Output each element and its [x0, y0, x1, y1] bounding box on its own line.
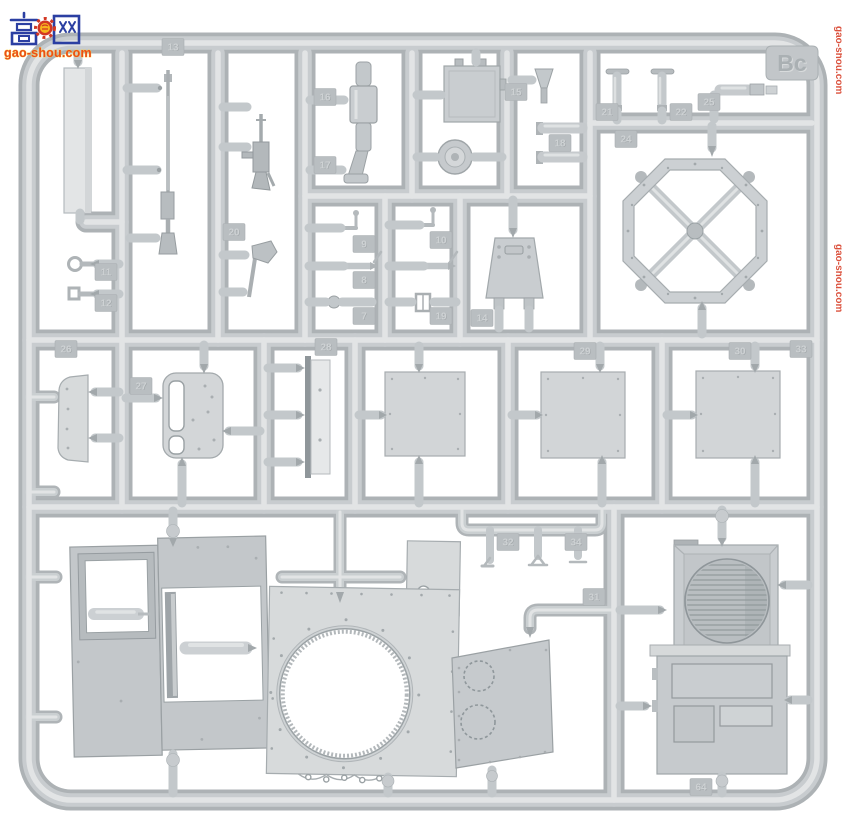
- part-number-text: 24: [620, 135, 632, 146]
- part-cylinder-2: [536, 151, 582, 164]
- part-number-tag: 99: [353, 236, 375, 253]
- part-number-tag: 1919: [430, 308, 452, 325]
- part-number-tag: 6464: [690, 779, 712, 796]
- part-number-tag: 88: [353, 272, 375, 289]
- part-number-text: 10: [435, 236, 447, 247]
- part-number-text: 25: [703, 98, 715, 109]
- part-number-text: 11: [101, 268, 112, 279]
- part-number-tag: 2929: [574, 343, 596, 360]
- part-axe: [249, 241, 277, 297]
- part-number-text: 12: [100, 299, 112, 310]
- part-number-tag: 1010: [430, 232, 452, 249]
- part-number-tag: 2828: [315, 339, 337, 356]
- part-angled-plate: [452, 640, 553, 768]
- part-octagon-turret-ring: [623, 159, 767, 303]
- part-antitank-rifle: [159, 70, 177, 254]
- part-number-text: 13: [167, 43, 179, 54]
- part-number-text: 9: [361, 240, 367, 251]
- part-number-tag: 1818: [549, 135, 571, 152]
- part-number-tag: 3232: [497, 534, 519, 551]
- part-number-text: 19: [435, 312, 447, 323]
- part-number-tag: 1515: [505, 84, 527, 101]
- part-studded-plate: [444, 59, 506, 122]
- part-number-text: 8: [361, 276, 367, 287]
- part-number-text: 17: [319, 161, 331, 172]
- part-number-tag: 3333: [790, 341, 812, 358]
- part-number-text: 27: [135, 382, 147, 393]
- part-number-tag: 2222: [670, 104, 692, 121]
- part-cab-door: [163, 373, 223, 458]
- fist-gear-icon: [36, 19, 55, 38]
- part-number-text: 26: [60, 345, 72, 356]
- part-number-text: 31: [588, 593, 600, 604]
- part-number-text: 15: [510, 88, 522, 99]
- sprue-canvas: 1313111112122020161617179988771010191914…: [0, 0, 842, 828]
- part-hook-bolt-2: [69, 288, 95, 299]
- part-number-text: 20: [228, 228, 240, 239]
- part-number-text: 14: [476, 314, 488, 325]
- sprue-photo: 1313111112122020161617179988771010191914…: [0, 0, 842, 828]
- part-square-plate-3: [696, 371, 780, 458]
- part-funnel: [535, 69, 553, 103]
- part-square-plate-2: [541, 372, 625, 458]
- part-number-text: 28: [320, 343, 332, 354]
- sprue-letter-tag: Bc Bc: [766, 46, 818, 80]
- watermark-url-text: gao-shou.com: [4, 46, 92, 60]
- part-number-text: 34: [570, 538, 582, 549]
- part-number-tag: 2525: [698, 94, 720, 111]
- part-number-tag: 2727: [130, 378, 152, 395]
- part-number-text: 22: [675, 108, 687, 119]
- part-number-text: 16: [319, 93, 331, 104]
- part-radiator-assembly: [650, 540, 790, 774]
- part-pulley-wheel: [438, 140, 472, 174]
- part-number-tag: 3434: [565, 534, 587, 551]
- part-number-text: 64: [695, 783, 707, 794]
- part-number-text: 30: [734, 347, 746, 358]
- part-number-tag: 1717: [314, 157, 336, 174]
- part-number-text: 29: [579, 347, 591, 358]
- part-submachine-gun: [242, 114, 274, 190]
- side-watermark-top: gao-shou.com: [833, 26, 842, 94]
- part-number-text: 7: [361, 312, 367, 323]
- logo-char-gao: [11, 13, 37, 44]
- part-number-tag: 77: [353, 308, 375, 325]
- part-number-tag: 1111: [95, 264, 117, 281]
- part-trapezoid-plate: [486, 238, 543, 309]
- part-number-tag: 1414: [471, 310, 493, 327]
- part-number-tag: 1212: [95, 295, 117, 312]
- part-number-tag: 3131: [583, 589, 605, 606]
- part-number-text: 32: [502, 538, 514, 549]
- sprue-letter-text: Bc: [777, 50, 807, 76]
- part-buckle: [416, 294, 430, 311]
- part-number-tag: 1616: [314, 89, 336, 106]
- part-number-tag: 2121: [596, 104, 618, 121]
- part-cylinder-connector: [720, 84, 777, 95]
- part-number-tag: 1313: [162, 39, 184, 56]
- part-edge-plate: [305, 356, 330, 478]
- part-number-tag: 2424: [615, 131, 637, 148]
- part-number-tag: 2626: [55, 341, 77, 358]
- part-number-tag: 3030: [729, 343, 751, 360]
- part-number-text: 21: [601, 108, 613, 119]
- parts-layer: [58, 59, 790, 784]
- part-long-strip: [64, 68, 91, 213]
- part-number-tag: 2020: [223, 224, 245, 241]
- part-square-plate-1: [385, 372, 465, 456]
- part-number-text: 33: [795, 345, 807, 356]
- part-pintle-mount: [344, 62, 377, 183]
- part-curved-fender: [58, 375, 88, 462]
- side-watermark-bottom: gao-shou.com: [833, 244, 842, 312]
- watermark-logo: gao-shou.com: [4, 13, 92, 60]
- part-number-text: 18: [554, 139, 566, 150]
